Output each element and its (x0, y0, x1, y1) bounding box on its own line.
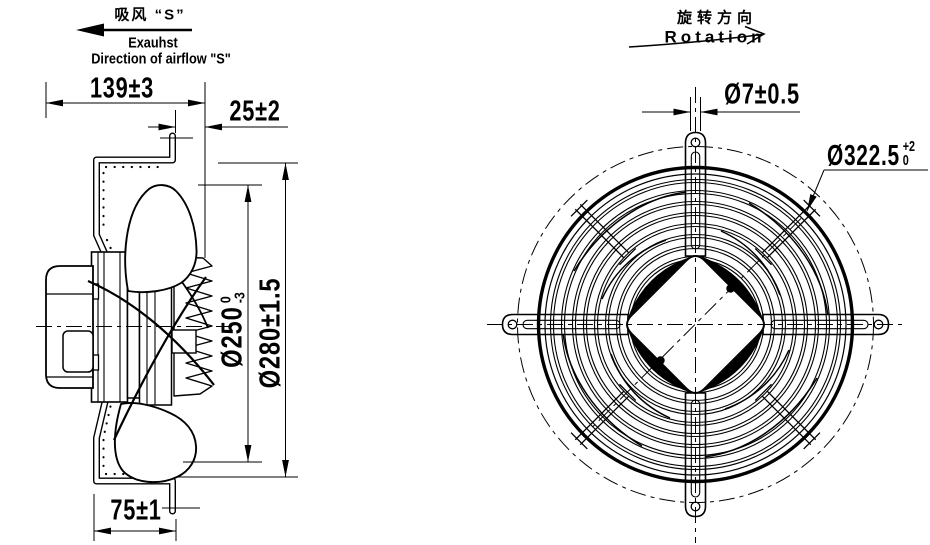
hub-screw-2 (656, 356, 664, 364)
dim-foot-75: 75±1 (110, 497, 161, 526)
technical-drawing-page: 吸风 “S” Exauhst Direction of airflow "S" … (0, 0, 930, 545)
rotation-label-zh: 旋转方向 (677, 11, 757, 26)
dim-impeller-dia-tolerance: 0-3 (220, 292, 248, 303)
airflow-label-en1: Exauhst (128, 36, 178, 51)
dim-guard-offset-25: 25±2 (229, 98, 280, 127)
dim-plate-dia-280: Ø280±1.5 (257, 278, 286, 389)
dim-impeller-dia-250: Ø2500-3 (218, 292, 247, 368)
dim-guard-dia-value: Ø322.5 (827, 140, 900, 172)
dim-impeller-dia-value: Ø250 (216, 306, 248, 367)
airflow-label-zh: 吸风 “S” (114, 8, 185, 23)
airflow-label-en2: Direction of airflow "S" (91, 52, 231, 67)
dim-guard-dia-322: Ø322.5+20 (827, 142, 915, 171)
dim-hole-dia-7: Ø7±0.5 (724, 81, 800, 110)
terminal-box-window (63, 331, 93, 372)
blade-top (125, 185, 196, 292)
dim-depth-139: 139±3 (90, 75, 154, 104)
dim-guard-dia-tolerance: +20 (903, 140, 915, 168)
rotation-label-en: Rotation (665, 29, 766, 46)
front-view (487, 27, 928, 544)
